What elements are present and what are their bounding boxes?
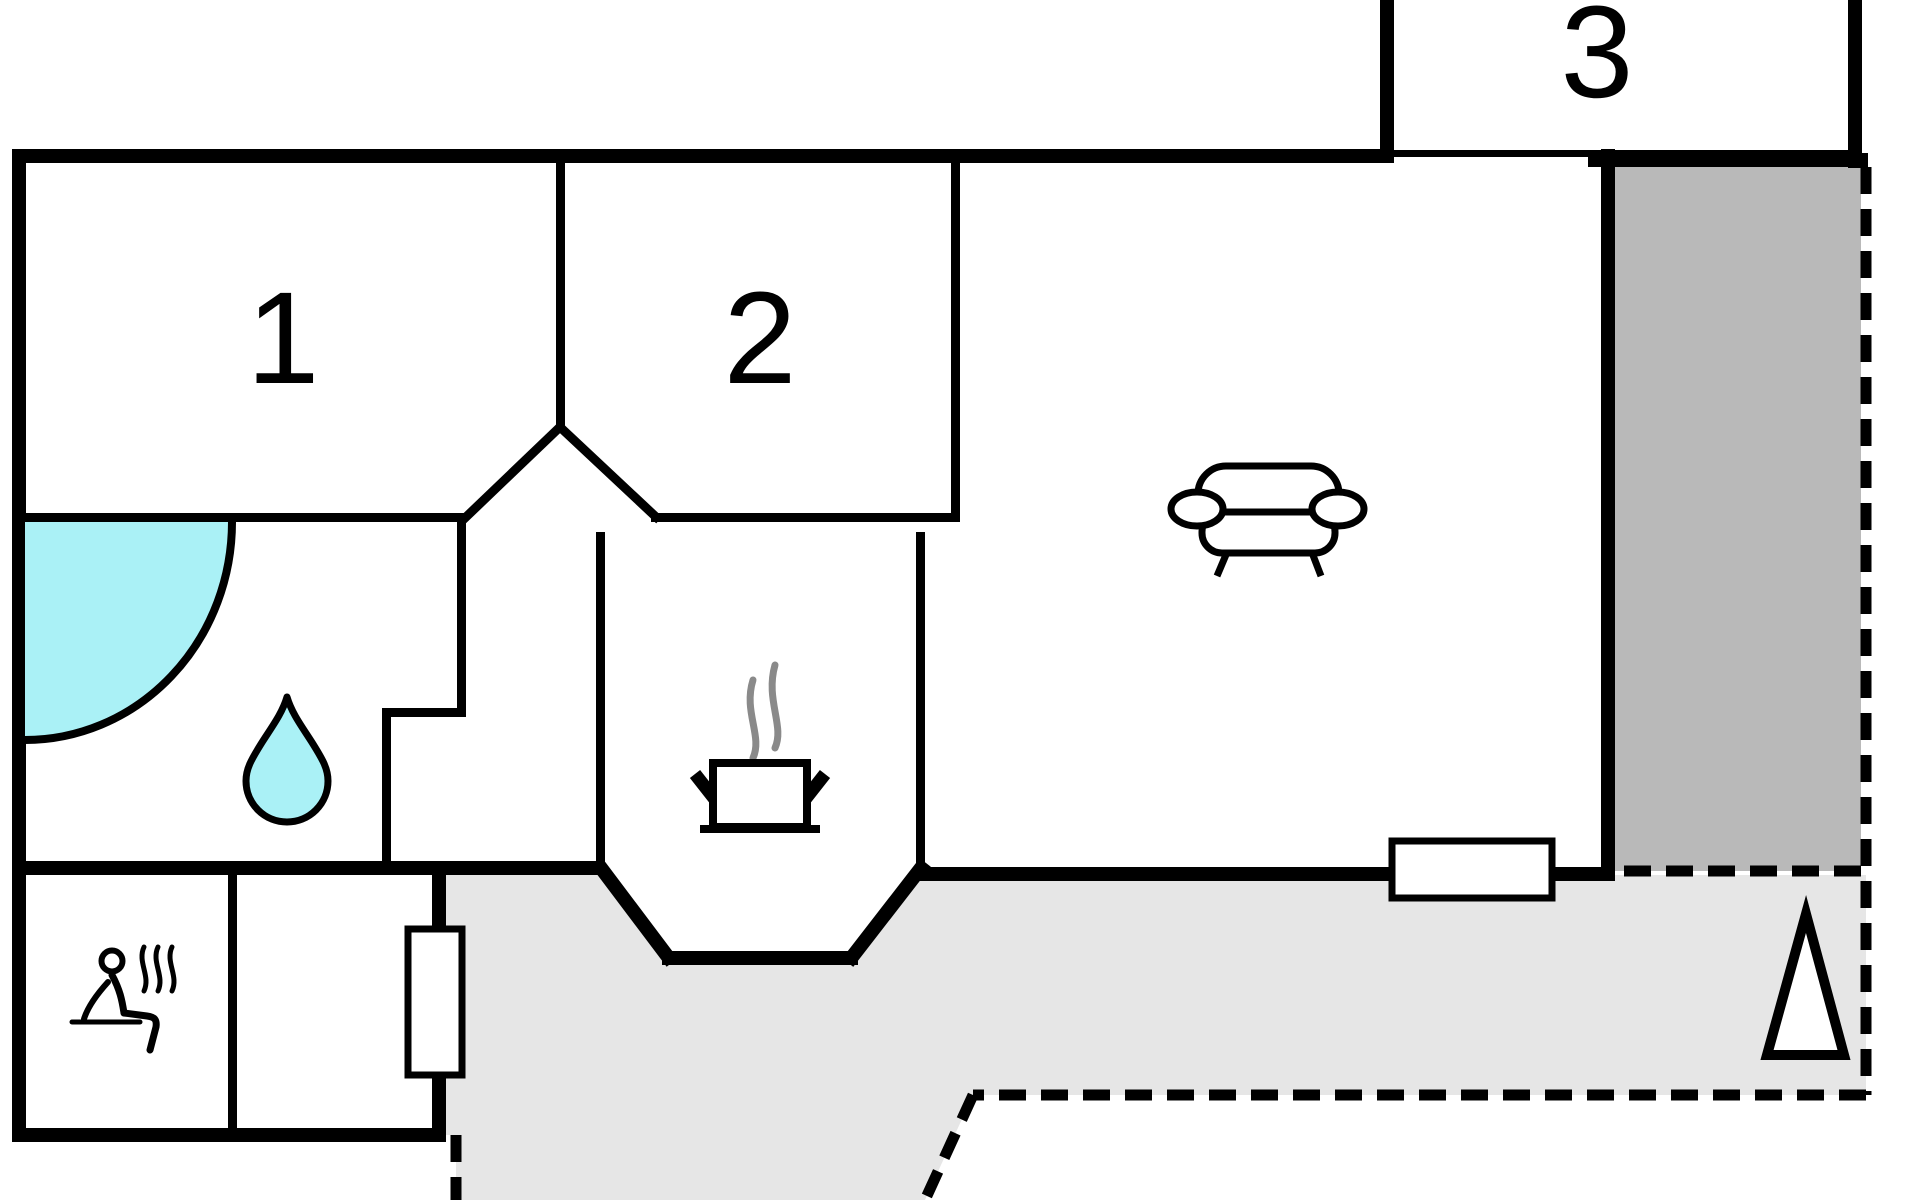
shower-icon bbox=[25, 522, 232, 740]
room-2-label: 2 bbox=[724, 264, 797, 411]
covered-terrace-area bbox=[1615, 160, 1861, 871]
sauna-icon bbox=[72, 947, 174, 1050]
room-labels: 1 2 3 bbox=[247, 0, 1634, 411]
floor-plan: 1 2 3 bbox=[0, 0, 1920, 1200]
room-3-label: 3 bbox=[1561, 0, 1634, 125]
window-living-room bbox=[1392, 841, 1552, 898]
sofa-icon bbox=[1171, 466, 1364, 576]
cooking-pot-icon bbox=[695, 665, 825, 829]
water-drop-icon bbox=[246, 697, 328, 822]
open-terrace-area bbox=[446, 875, 1866, 1200]
floor-plan-canvas: 1 2 3 bbox=[0, 0, 1920, 1200]
window-lower-left bbox=[408, 929, 462, 1075]
room-1-label: 1 bbox=[247, 264, 320, 411]
